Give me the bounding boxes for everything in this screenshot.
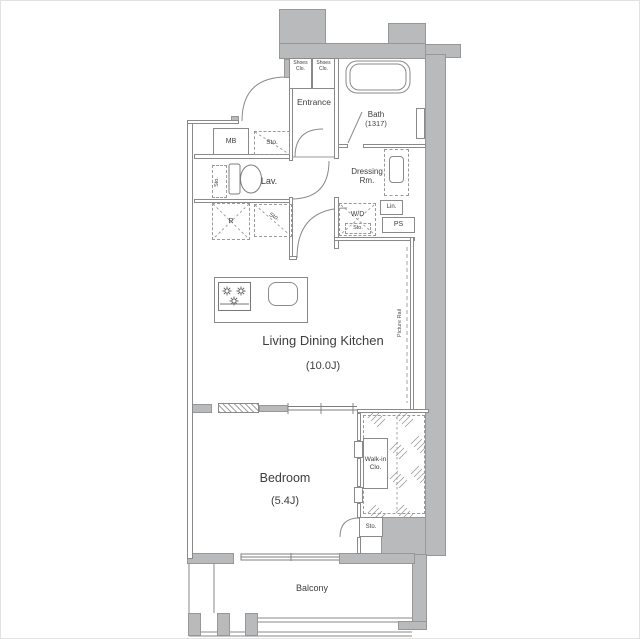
pipe-space-label: PS (394, 221, 403, 229)
linen-closet-label: Lin. (387, 204, 397, 211)
balcony-label: Balcony (242, 583, 382, 593)
wall (187, 120, 239, 124)
bedroom-label: Bedroom (215, 471, 355, 485)
storage-laundry-label: Sto. (353, 225, 363, 231)
wall (412, 554, 427, 630)
kitchen-sink (268, 282, 298, 306)
entrance-door-arc (242, 77, 287, 121)
bathtub-icon (346, 61, 410, 93)
bath-name: Bath (368, 110, 384, 119)
storage-walk-in: Sto. (359, 517, 383, 537)
ldk-size-label: (10.0J) (223, 360, 423, 373)
wall (410, 237, 414, 413)
dressing-room-label: Dressing Rm. (343, 167, 391, 185)
lavatory-door-arc (291, 161, 329, 199)
entrance-label: Entrance (284, 98, 344, 108)
shoes-closet: Shoes Clo. (289, 58, 312, 89)
balcony-pillar (217, 613, 230, 636)
wall (357, 458, 361, 487)
wall (357, 503, 361, 518)
storage-walk-in-label: Sto. (366, 524, 377, 531)
hall-door-arc (295, 129, 323, 157)
bath-size: (1317) (365, 119, 387, 128)
walk-in-closet-label: Walk-in Clo. (364, 456, 387, 470)
wall (289, 256, 297, 260)
wall (339, 553, 415, 564)
shoes-closet-label: Shoes Clo. (290, 61, 311, 72)
storage-hall-label: Sto. (266, 139, 278, 146)
floor-plan: MB Sto. Sto. R Sto. Shoes Clo. Shoes Clo… (0, 0, 640, 639)
meter-box-label: MB (226, 138, 237, 146)
washer-dryer-space: W/D Sto. (339, 203, 376, 236)
stove (218, 282, 251, 311)
balcony-pillar (188, 613, 201, 636)
wall (425, 54, 446, 556)
refrigerator-label: R (228, 218, 233, 226)
wall (363, 144, 426, 148)
walk-in-door-panel (354, 441, 363, 458)
wall (381, 517, 426, 556)
refrigerator-space: R (212, 203, 250, 240)
storage-hall: Sto. (254, 131, 290, 155)
wall (357, 413, 361, 441)
storage-lavatory-label: Sto. (214, 167, 224, 197)
wall (334, 237, 415, 241)
storage-laundry: Sto. (345, 223, 371, 234)
sliding-partition-panel (259, 405, 288, 412)
bedroom-size-label: (5.4J) (215, 495, 355, 508)
sliding-partition-track (288, 403, 357, 414)
picture-rail-label: Picture Rail (397, 298, 407, 348)
wall (187, 553, 234, 564)
washbasin-bowl (389, 156, 404, 183)
lavatory-label: Lav. (249, 176, 289, 186)
wall (279, 43, 426, 59)
linen-closet: Lin. (380, 200, 403, 215)
wall (398, 621, 427, 630)
pipe-space: PS (382, 217, 415, 233)
balcony-window (241, 553, 341, 561)
walk-in-door-panel (354, 487, 363, 503)
washer-dryer-label: W/D (340, 211, 375, 219)
wall (187, 120, 193, 559)
wall (357, 537, 361, 554)
shoes-closet-label: Shoes Clo. (313, 61, 334, 72)
bedroom-storage-door-arc (340, 518, 359, 537)
walk-in-closet-labelbox: Walk-in Clo. (363, 438, 388, 489)
wall (357, 409, 429, 413)
meter-box: MB (213, 128, 249, 155)
ldk-label: Living Dining Kitchen (223, 334, 423, 349)
bath-label: Bath (1317) (346, 110, 406, 129)
sliding-partition-pocket (218, 403, 259, 413)
balcony-pillar (245, 613, 258, 636)
shoes-closet: Shoes Clo. (312, 58, 335, 89)
stove-burners (219, 283, 250, 310)
wall (338, 144, 348, 148)
bath-counter (416, 108, 425, 139)
